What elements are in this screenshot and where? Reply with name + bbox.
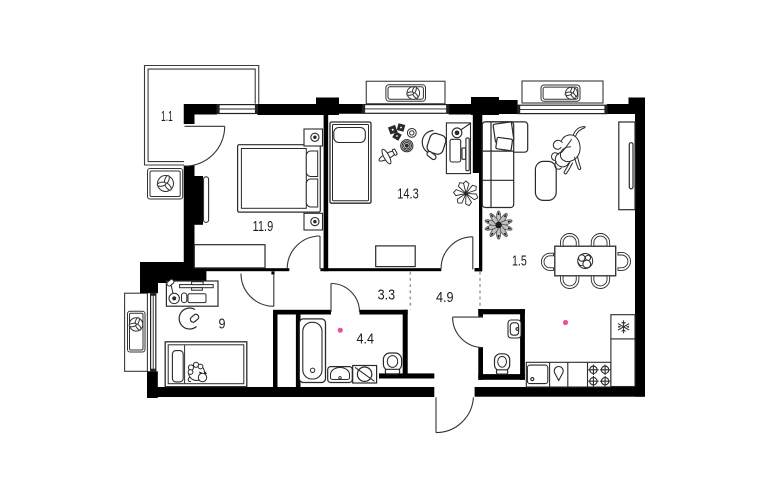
svg-text:4.9: 4.9 [436, 289, 454, 306]
svg-text:11.9: 11.9 [253, 218, 274, 235]
svg-text:1.5: 1.5 [512, 252, 527, 269]
svg-text:9: 9 [219, 316, 226, 333]
svg-text:3.3: 3.3 [378, 287, 396, 304]
svg-text:1.1: 1.1 [161, 108, 173, 125]
svg-text:14.3: 14.3 [397, 185, 419, 202]
svg-text:4.4: 4.4 [357, 330, 375, 347]
